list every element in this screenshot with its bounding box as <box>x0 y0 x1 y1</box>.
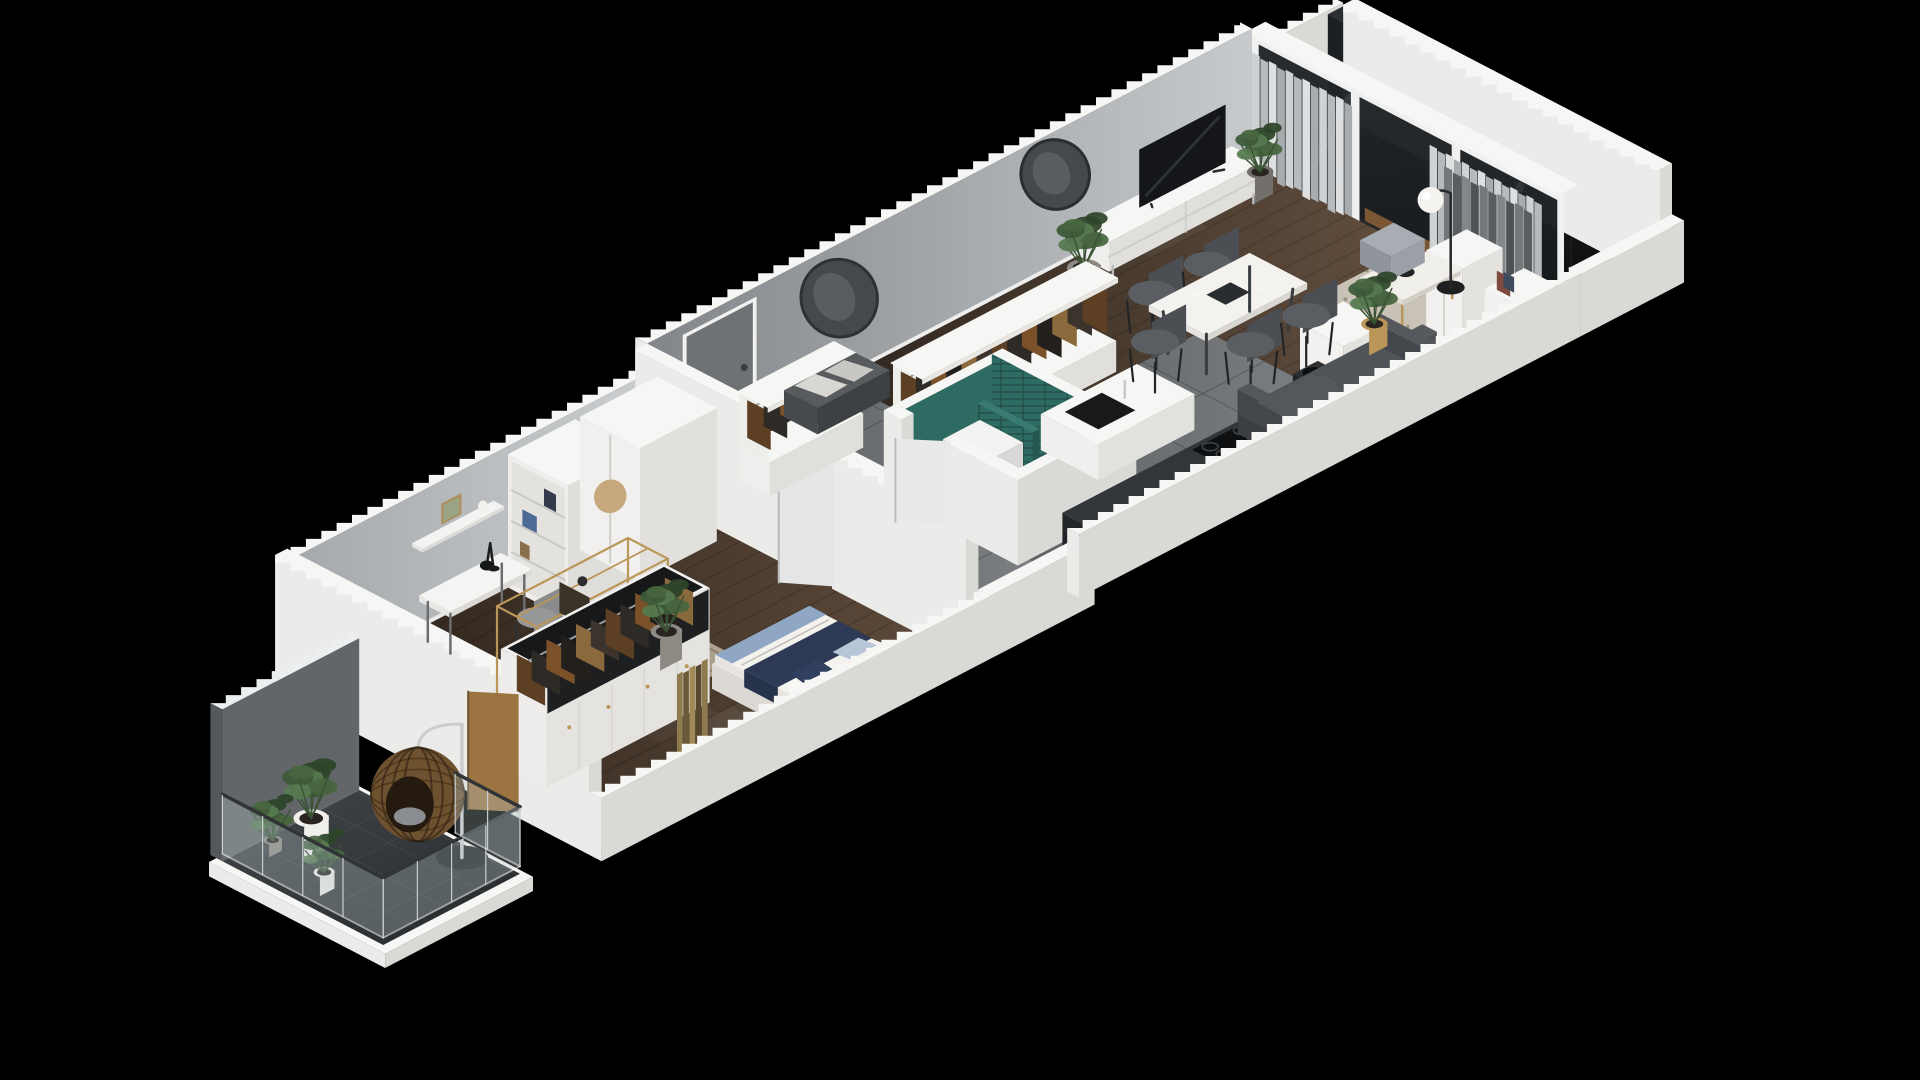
living-sheer-curtains-left-fold <box>1302 79 1310 201</box>
tv-stand-leg <box>1151 204 1152 207</box>
bedroom-plant-foliage <box>647 586 667 597</box>
dining-chair-seat <box>1282 303 1330 328</box>
living-plant-gold-pot-foliage <box>1377 272 1397 283</box>
shelf-decor-lamp <box>478 501 488 513</box>
bedroom-open-wardrobe-knob <box>685 664 689 668</box>
bedroom-front-wall-left-face <box>590 792 602 862</box>
plant-by-tv-right-foliage <box>1263 123 1281 133</box>
living-sheer-curtains-left-fold <box>1319 87 1327 204</box>
living-sheer-curtains-left-fold <box>1269 61 1277 178</box>
dining-cup <box>1257 286 1267 292</box>
plant-by-tv-left-foliage <box>1058 238 1082 252</box>
plant-by-tv-left-foliage <box>1063 219 1085 232</box>
bedroom-plant-foliage <box>666 600 690 613</box>
living-plant-gold-pot-foliage <box>1355 278 1375 289</box>
plant-by-tv-left-foliage <box>1085 212 1107 225</box>
desk-lamp-base <box>488 566 500 572</box>
living-plant-gold-pot-foliage <box>1374 292 1398 305</box>
bedroom-open-wardrobe-knob <box>646 685 650 689</box>
plant-by-tv-left-foliage <box>1082 232 1108 247</box>
dining-cup <box>1189 291 1199 297</box>
balcony-plant-large-foliage <box>311 758 336 772</box>
balcony-left-wall-panel-left-face <box>210 703 222 861</box>
bedroom-open-wardrobe-knob <box>567 725 571 729</box>
living-sheer-curtains-left-fold <box>1328 94 1336 214</box>
apartment-isometric-render <box>0 0 1920 1080</box>
living-sheer-curtains-left-fold <box>1286 70 1294 189</box>
balcony-plant-small-foliage <box>329 829 344 837</box>
bathroom-wall-south-left-face <box>1007 474 1018 565</box>
bedroom-open-wardrobe-knob <box>606 705 610 709</box>
front-wall-living-left-face <box>1067 528 1079 598</box>
floor-lamp-globe-highlight <box>1423 192 1431 200</box>
balcony-plant-bush-foliage <box>255 801 271 810</box>
hanging-egg-chair-cushion <box>394 807 426 825</box>
living-sheer-curtains-left-fold <box>1336 96 1344 215</box>
balcony-plant-large-foliage <box>308 778 338 794</box>
living-sheer-curtains-left-fold <box>1311 85 1319 203</box>
bedroom-plant-foliage <box>669 579 689 590</box>
window-mullion-b <box>1351 86 1360 221</box>
dining-chair-seat <box>1131 329 1179 354</box>
floor-lamp-globe <box>1418 187 1444 213</box>
floorplan-stage <box>0 0 1920 1080</box>
living-room-rug-speckle <box>1343 297 1347 301</box>
gold-clothes-rack-decor <box>577 576 587 586</box>
balcony-plant-large-foliage <box>289 765 314 779</box>
dining-chair-seat <box>1227 332 1275 357</box>
living-sheer-curtains-left-fold <box>1344 102 1352 217</box>
bathroom-door-ajar <box>895 439 951 525</box>
balcony-plant-bush-foliage <box>277 794 293 803</box>
living-sheer-curtains-left-fold <box>1294 76 1302 191</box>
plant-by-tv-right-foliage <box>1241 130 1259 140</box>
entry-door-handle <box>741 364 748 371</box>
